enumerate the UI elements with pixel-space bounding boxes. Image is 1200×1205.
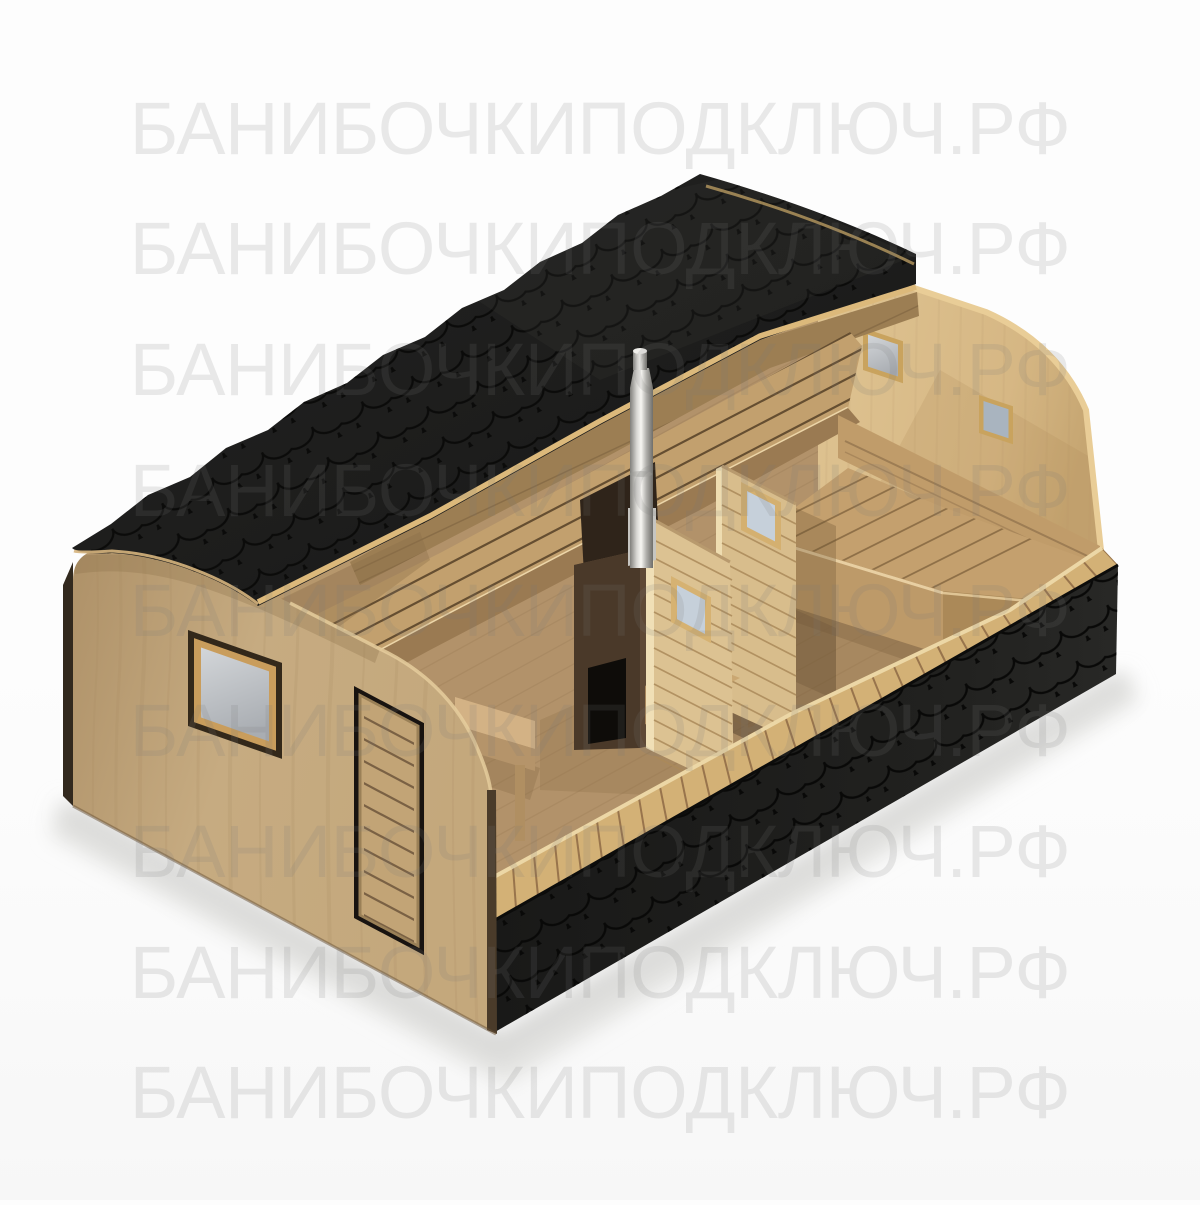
svg-text:БАНИБОЧКИПОДКЛЮЧ.РФ: БАНИБОЧКИПОДКЛЮЧ.РФ (130, 569, 1071, 652)
svg-text:БАНИБОЧКИПОДКЛЮЧ.РФ: БАНИБОЧКИПОДКЛЮЧ.РФ (130, 207, 1071, 290)
svg-text:БАНИБОЧКИПОДКЛЮЧ.РФ: БАНИБОЧКИПОДКЛЮЧ.РФ (130, 1051, 1071, 1134)
svg-text:БАНИБОЧКИПОДКЛЮЧ.РФ: БАНИБОЧКИПОДКЛЮЧ.РФ (130, 87, 1071, 170)
svg-text:БАНИБОЧКИПОДКЛЮЧ.РФ: БАНИБОЧКИПОДКЛЮЧ.РФ (130, 449, 1071, 532)
svg-text:БАНИБОЧКИПОДКЛЮЧ.РФ: БАНИБОЧКИПОДКЛЮЧ.РФ (130, 810, 1071, 893)
svg-text:БАНИБОЧКИПОДКЛЮЧ.РФ: БАНИБОЧКИПОДКЛЮЧ.РФ (130, 931, 1071, 1014)
svg-text:БАНИБОЧКИПОДКЛЮЧ.РФ: БАНИБОЧКИПОДКЛЮЧ.РФ (130, 689, 1071, 772)
svg-text:БАНИБОЧКИПОДКЛЮЧ.РФ: БАНИБОЧКИПОДКЛЮЧ.РФ (130, 328, 1071, 411)
